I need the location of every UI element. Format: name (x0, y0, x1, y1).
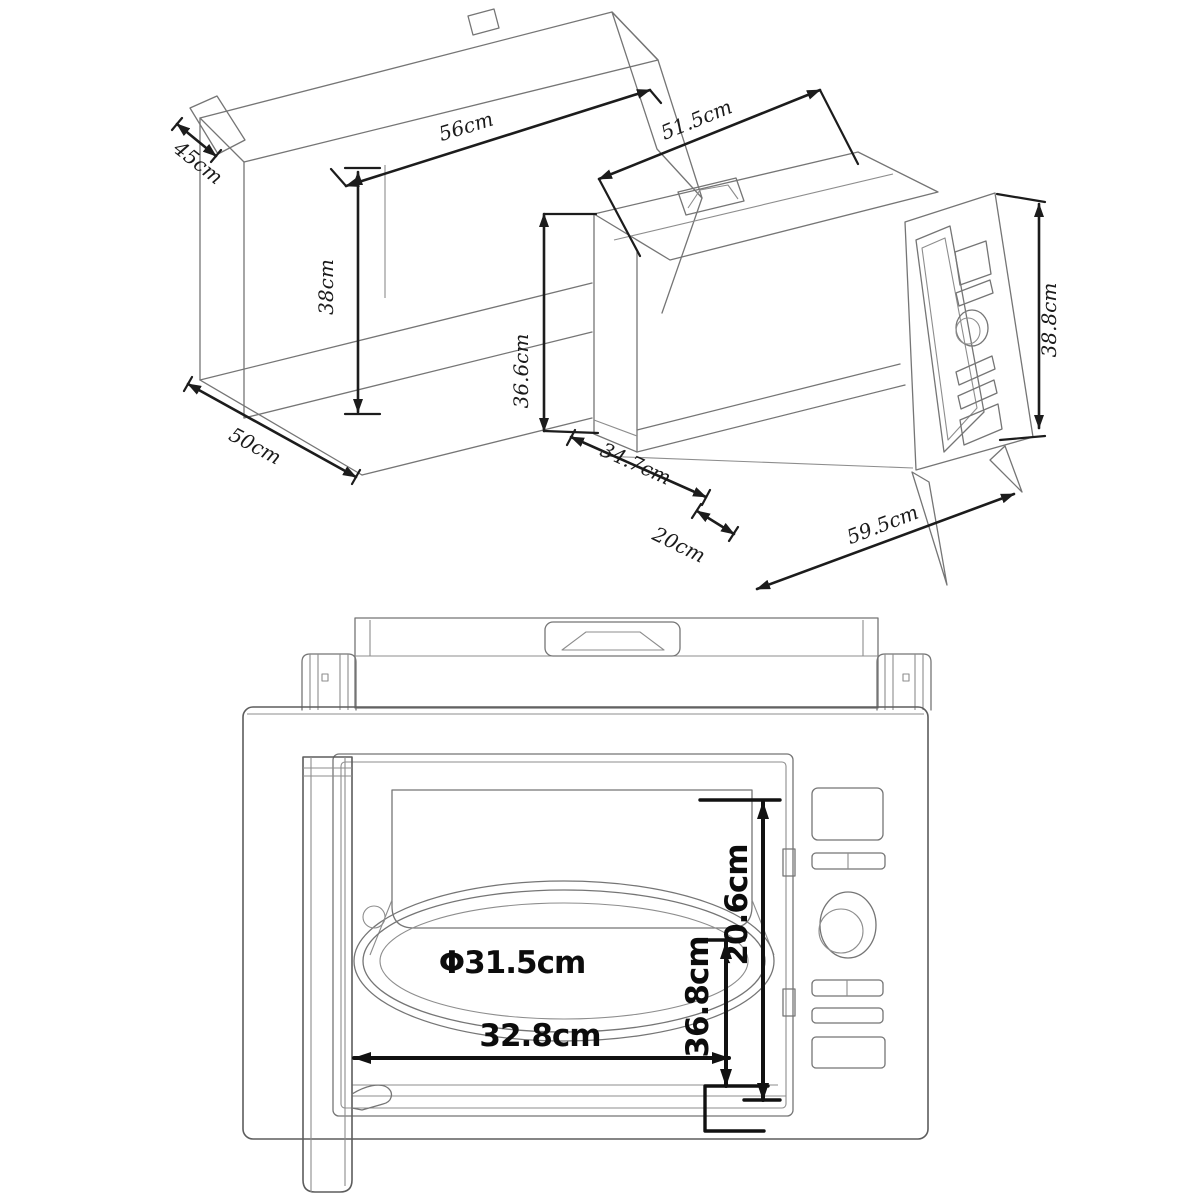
mounting-bracket-right (877, 654, 931, 710)
display-window (812, 788, 883, 840)
oven-iso-control-panel (955, 241, 1002, 445)
front-top-vent (545, 622, 680, 656)
iso-button-row-3 (958, 380, 997, 409)
mounting-bracket-left (302, 654, 356, 710)
iso-knob (956, 310, 988, 346)
dim-oven-frame-height-label: 38.8cm (1037, 283, 1061, 358)
turntable-roller (363, 906, 385, 928)
dim-oven-body-height-label: 36.6cm (509, 334, 533, 409)
front-control-panel (812, 788, 885, 1068)
dim-turntable-label: Φ31.5cm (439, 945, 586, 981)
iso-button-big (960, 404, 1002, 445)
front-trim-panel (243, 707, 928, 1139)
cabinet-left-flange (190, 96, 245, 154)
dimension-drawing-canvas: 45cm 56cm 38cm 50cm (0, 0, 1200, 1200)
iso-display (955, 241, 991, 285)
dim-oven-overhang-label: 20cm (648, 521, 709, 567)
button-row-3 (812, 1008, 883, 1023)
cabinet-right-panel (612, 12, 702, 198)
microwave-iso-drawing (594, 152, 1033, 585)
cabinet-top-face (200, 12, 658, 162)
open-door (303, 757, 391, 1192)
dim-inner-depth-label: 36.8cm (680, 936, 716, 1057)
trim-frame-right-foot (990, 446, 1022, 492)
microwave-front-view (243, 618, 931, 1192)
control-knob (820, 892, 876, 958)
drawing-page: 45cm 56cm 38cm 50cm (0, 0, 1200, 1200)
dim-cabinet-depth-top-label: 45cm (168, 135, 227, 189)
dim-cabinet-depth-bottom-label: 50cm (225, 422, 285, 469)
front-view-dimensions: 20.6cm 36.8cm 32.8cm Φ31.5cm (354, 800, 780, 1131)
door-latch-hook (352, 1085, 391, 1110)
iso-button-row-2 (956, 356, 995, 385)
cabinet-back-tab (468, 9, 499, 35)
cabinet-iso-drawing (190, 9, 702, 475)
dim-inner-width-label: 32.8cm (479, 1018, 600, 1054)
oven-door-window (916, 226, 984, 452)
dim-cabinet-height-label: 38cm (314, 259, 338, 315)
cabinet-dimensions: 45cm 56cm 38cm 50cm (168, 90, 661, 484)
cavity-back-wall (392, 790, 752, 928)
microwave-iso-dimensions: 51.5cm 36.6cm 34.7cm 20cm 59.5cm 38.8cm (509, 90, 1061, 589)
button-big (812, 1037, 885, 1068)
oven-top-face (594, 152, 938, 260)
dim-oven-body-width-label: 51.5cm (657, 94, 735, 144)
